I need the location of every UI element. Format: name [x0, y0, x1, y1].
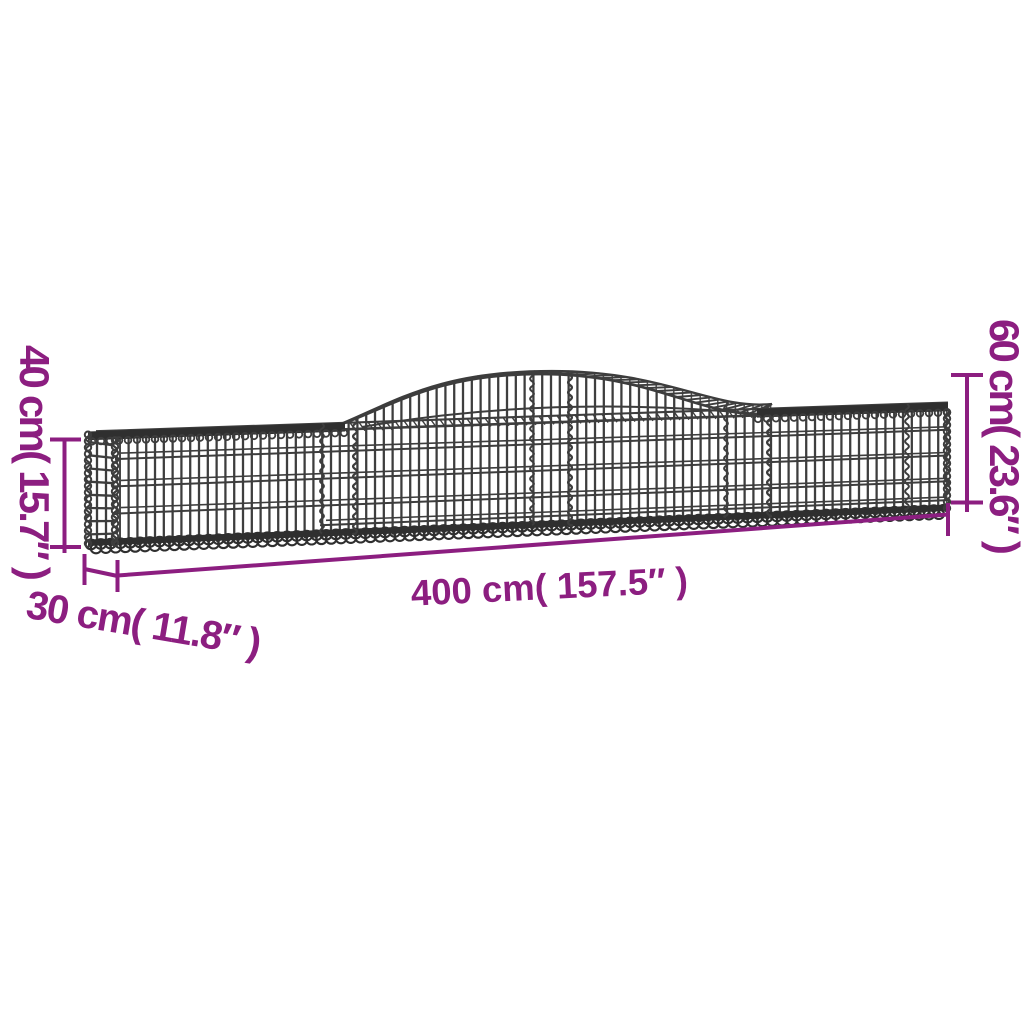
svg-text:60 cm( 23.6″ ): 60 cm( 23.6″ ) [981, 319, 1024, 553]
svg-text:40 cm( 15.7″ ): 40 cm( 15.7″ ) [11, 345, 58, 579]
